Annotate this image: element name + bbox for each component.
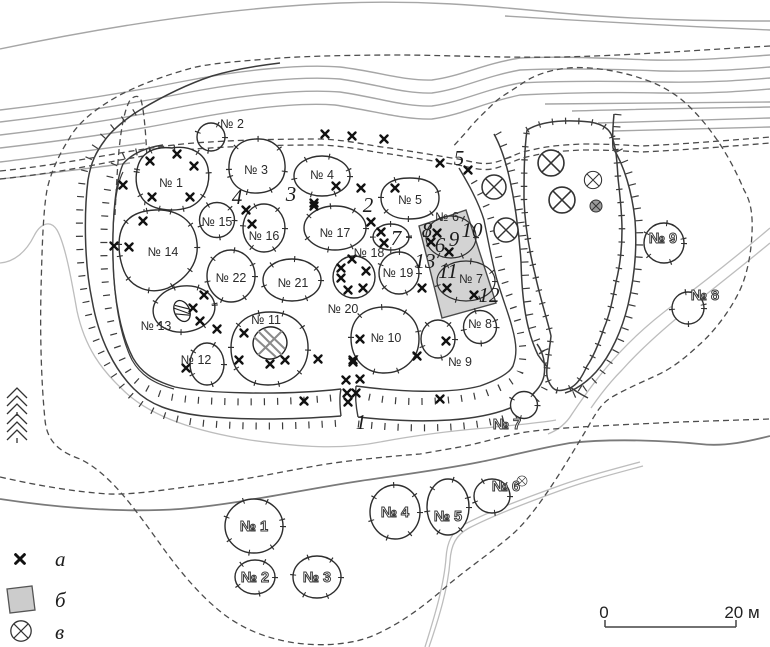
svg-text:№ 19: № 19 bbox=[383, 266, 414, 280]
svg-text:№ 12: № 12 bbox=[181, 353, 212, 367]
svg-text:в: в bbox=[55, 620, 64, 644]
svg-text:№ 2: № 2 bbox=[220, 117, 244, 131]
svg-text:12: 12 bbox=[479, 283, 501, 307]
svg-text:9: 9 bbox=[449, 227, 460, 251]
svg-text:№ 3: № 3 bbox=[303, 570, 331, 586]
svg-text:№ 1: № 1 bbox=[159, 176, 183, 190]
svg-text:3: 3 bbox=[285, 182, 297, 206]
svg-text:№ 5: № 5 bbox=[398, 193, 422, 207]
svg-text:№ 1: № 1 bbox=[240, 519, 268, 535]
svg-text:№ 7: № 7 bbox=[493, 417, 521, 433]
svg-text:а: а bbox=[55, 547, 66, 571]
svg-text:№ 5: № 5 bbox=[434, 509, 462, 525]
svg-text:№ 8: № 8 bbox=[691, 288, 719, 304]
svg-text:№ 17: № 17 bbox=[320, 226, 351, 240]
svg-text:11: 11 bbox=[438, 259, 457, 283]
svg-text:20 м: 20 м bbox=[724, 603, 759, 622]
svg-text:№ 4: № 4 bbox=[310, 168, 334, 182]
svg-text:№ 4: № 4 bbox=[381, 505, 409, 521]
svg-text:№ 18: № 18 bbox=[354, 246, 385, 260]
svg-text:б: б bbox=[55, 588, 67, 612]
svg-text:№ 13: № 13 bbox=[141, 319, 172, 333]
svg-text:№ 20: № 20 bbox=[328, 302, 359, 316]
svg-text:4: 4 bbox=[232, 185, 243, 209]
svg-text:5: 5 bbox=[454, 146, 465, 170]
svg-text:6: 6 bbox=[435, 233, 446, 257]
svg-text:№ 3: № 3 bbox=[244, 163, 268, 177]
svg-text:0: 0 bbox=[599, 603, 608, 622]
svg-text:№ 2: № 2 bbox=[241, 570, 269, 586]
svg-text:№ 9: № 9 bbox=[649, 231, 677, 247]
svg-text:2: 2 bbox=[363, 193, 374, 217]
svg-text:№ 14: № 14 bbox=[148, 245, 179, 259]
svg-text:№ 16: № 16 bbox=[249, 229, 280, 243]
svg-text:№ 6: № 6 bbox=[435, 210, 459, 224]
svg-text:№ 22: № 22 bbox=[216, 271, 247, 285]
svg-text:№ 8: № 8 bbox=[468, 317, 492, 331]
svg-text:№ 15: № 15 bbox=[202, 215, 233, 229]
svg-text:8: 8 bbox=[422, 218, 433, 242]
svg-text:1: 1 bbox=[356, 410, 367, 434]
svg-text:7: 7 bbox=[391, 226, 403, 250]
svg-text:№ 11: № 11 bbox=[251, 313, 281, 327]
svg-text:№ 21: № 21 bbox=[278, 276, 309, 290]
svg-text:№ 6: № 6 bbox=[492, 479, 520, 495]
svg-text:10: 10 bbox=[462, 218, 484, 242]
svg-text:№ 9: № 9 bbox=[448, 355, 472, 369]
svg-text:13: 13 bbox=[415, 249, 436, 273]
svg-text:№ 10: № 10 bbox=[371, 331, 402, 345]
